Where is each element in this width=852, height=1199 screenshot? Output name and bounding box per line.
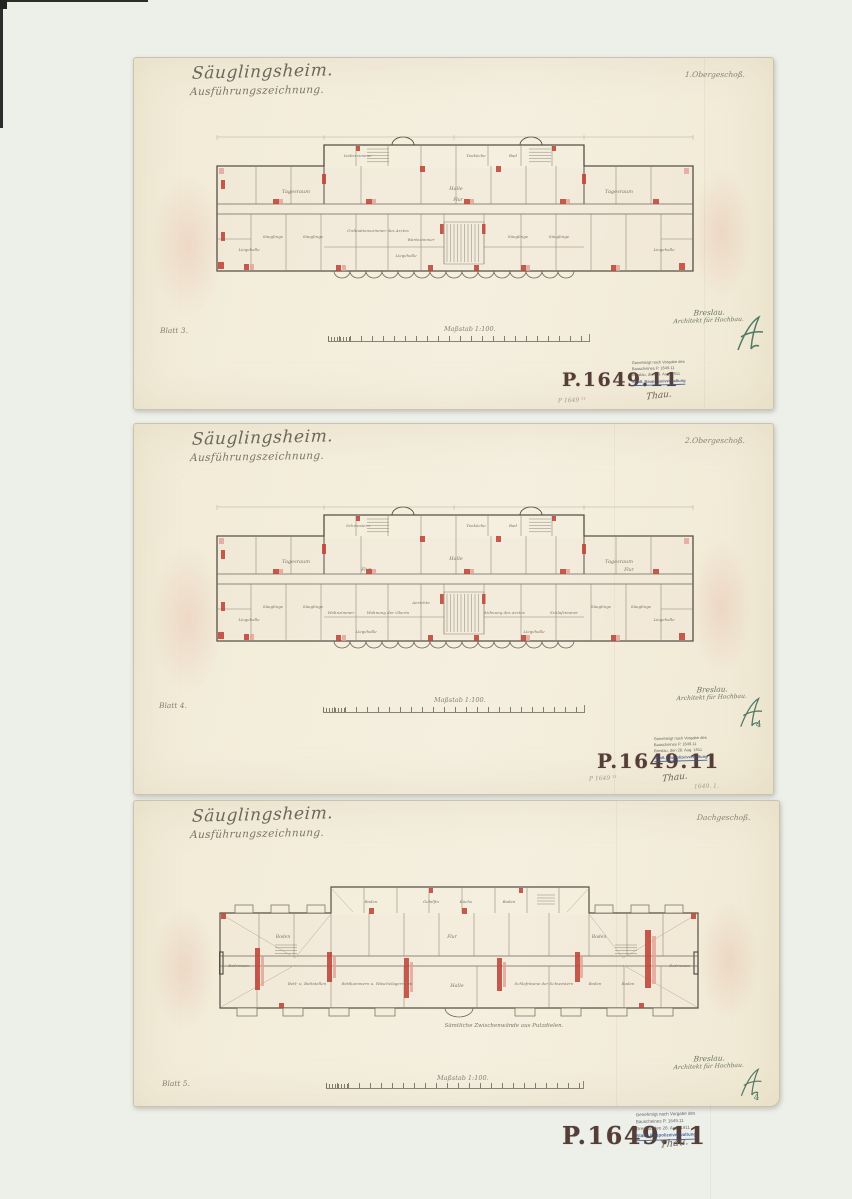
approval-stamp: Genehmigt nach Vorgabe des Bauscheines P…: [654, 734, 743, 762]
room-label: Wohnung der Oberin: [367, 610, 410, 615]
room-label: Boden: [588, 981, 602, 986]
pencil-note: P 1649 ¹¹: [589, 775, 617, 783]
room-label: Schwestern: [346, 523, 370, 528]
approval-monogram-icon: [734, 314, 766, 354]
pencil-note: 1649. 1.: [694, 783, 719, 791]
room-label: Teeküche: [466, 153, 486, 158]
plan-note: Sämtliche Zwischenwände aus Putzdielen.: [404, 1023, 604, 1029]
room-label: Säuglinge: [263, 604, 284, 609]
approval-check-mark: 4: [753, 1093, 760, 1104]
sheet-title: Säuglingsheim.: [192, 60, 334, 83]
room-label: Säuglinge: [508, 234, 529, 239]
room-label: Flur: [452, 197, 463, 203]
approval-check-mark: 4: [755, 720, 762, 731]
scale-bar: [323, 707, 585, 713]
scanner-edge-corner: [0, 0, 7, 9]
room-label: Bettkammern u. Wäschelagerraum: [341, 981, 413, 986]
scale-label: Maßstab 1:100.: [437, 1074, 489, 1082]
approval-stamp: Genehmigt nach Vorgabe des Bauscheines P…: [632, 358, 721, 386]
room-label: Wohnzimmer: [328, 610, 356, 615]
room-label: Säuglinge: [591, 604, 612, 609]
handwritten-signature: Thau.: [646, 389, 672, 402]
sheet-subtitle: Ausführungszeichnung.: [190, 827, 325, 841]
approval-stamp-office: Städt. Baupolizeiverwaltung: [632, 377, 686, 386]
room-label: Säuglinge: [263, 234, 284, 239]
room-label: Boden: [275, 934, 291, 940]
room-label: Wartezimmer: [407, 237, 435, 242]
room-label: Liegehalle: [394, 253, 417, 258]
sheet-number: Blatt 5.: [162, 1079, 190, 1088]
room-label: Boden: [621, 981, 635, 986]
room-label: Boden: [591, 934, 607, 940]
paper-crease: [704, 58, 705, 409]
ink-bleed: [152, 173, 224, 318]
room-label: Bodenraum: [668, 964, 691, 968]
room-label: Schlafräume der Schwestern: [515, 981, 574, 986]
room-label: Liegehalle: [354, 629, 377, 634]
floor-label: Dachgeschoß.: [697, 813, 751, 822]
scale-label: Maßstab 1:100.: [444, 325, 496, 333]
room-label: Säuglinge: [549, 234, 570, 239]
room-label: Isolierzimmer: [343, 153, 373, 158]
room-label: Liegehalle: [237, 247, 260, 252]
room-label: Säuglinge: [631, 604, 652, 609]
room-label: Bad: [508, 523, 517, 528]
room-label: Anrichte: [411, 600, 430, 605]
sheet-1-obergeschoss: Säuglingsheim. Ausführungszeichnung. 1.O…: [133, 57, 774, 410]
sheet-subtitle: Ausführungszeichnung.: [190, 450, 325, 464]
room-label: Liegehalle: [652, 617, 675, 622]
room-label: Flur: [623, 567, 634, 573]
room-label: Säuglinge: [303, 234, 324, 239]
ink-bleed: [152, 544, 224, 694]
scale-label: Maßstab 1:100.: [434, 696, 486, 704]
room-label: Teeküche: [466, 523, 486, 528]
floor-plan: Tagesraum Tagesraum Halle Flur Säuglinge…: [216, 132, 694, 280]
room-label: Halle: [448, 556, 463, 562]
room-label: Wohnung des Arztes: [483, 610, 525, 615]
room-label: Liegehalle: [237, 617, 260, 622]
room-label: Tagesraum: [605, 559, 633, 565]
sheet-subtitle: Ausführungszeichnung.: [190, 84, 325, 98]
scanned-archive-page: { "colors":{ "paper":"#f3edda", "backing…: [0, 0, 852, 1199]
room-label: Boden: [364, 899, 378, 904]
scanner-edge-left: [0, 0, 3, 128]
room-label: Ordinationszimmer des Arztes: [347, 228, 409, 233]
room-label: Bad: [508, 153, 517, 158]
room-label: Halle: [448, 186, 463, 192]
sheet-title: Säuglingsheim.: [192, 426, 334, 449]
sheet-2-obergeschoss: Säuglingsheim. Ausführungszeichnung. 2.O…: [133, 423, 774, 795]
room-label: Bodenraum: [227, 964, 250, 968]
ink-bleed: [152, 906, 217, 1031]
scale-bar: [328, 336, 590, 342]
room-label: Halle: [449, 983, 464, 989]
sheet-number: Blatt 4.: [159, 701, 187, 710]
scanner-edge-top: [0, 0, 148, 2]
floor-label: 1.Obergeschoß.: [684, 70, 745, 79]
pencil-note: P 1649 ¹¹: [558, 397, 586, 405]
ink-bleed: [690, 168, 752, 298]
room-label: Bett- u. Bettstellen: [287, 981, 327, 986]
floor-label: 2.Obergeschoß.: [684, 436, 745, 445]
room-label: Tagesraum: [282, 559, 310, 565]
handwritten-signature: Thau.: [662, 771, 688, 784]
room-label: Flur: [360, 567, 371, 573]
floor-plan: Tagesraum Tagesraum Halle Flur Flur Säug…: [216, 502, 694, 650]
room-label: Tagesraum: [282, 189, 310, 195]
room-label: Flur: [446, 934, 457, 940]
sheet-number: Blatt 3.: [160, 326, 188, 335]
room-label: Schlafzimmer: [550, 610, 579, 615]
room-label: Küche: [459, 899, 473, 904]
room-label: Liegehalle: [522, 629, 545, 634]
sheet-title: Säuglingsheim.: [192, 803, 334, 826]
room-label: Liegehalle: [652, 247, 675, 252]
scale-bar: [326, 1083, 584, 1089]
room-label: Tagesraum: [605, 189, 633, 195]
sheet-3-dachgeschoss: Säuglingsheim. Ausführungszeichnung. Dac…: [133, 800, 780, 1107]
room-label: Säuglinge: [303, 604, 324, 609]
room-label: Gehilfin: [423, 899, 439, 904]
room-label: Boden: [502, 899, 516, 904]
floor-plan: Bodenraum Boden Flur Halle Bett- u. Bett…: [219, 886, 699, 1018]
ink-bleed: [699, 901, 759, 1021]
ink-bleed: [690, 539, 752, 674]
approval-monogram-icon: [737, 1067, 765, 1099]
approval-stamp-office: Städt. Baupolizeiverwaltung: [654, 753, 708, 762]
